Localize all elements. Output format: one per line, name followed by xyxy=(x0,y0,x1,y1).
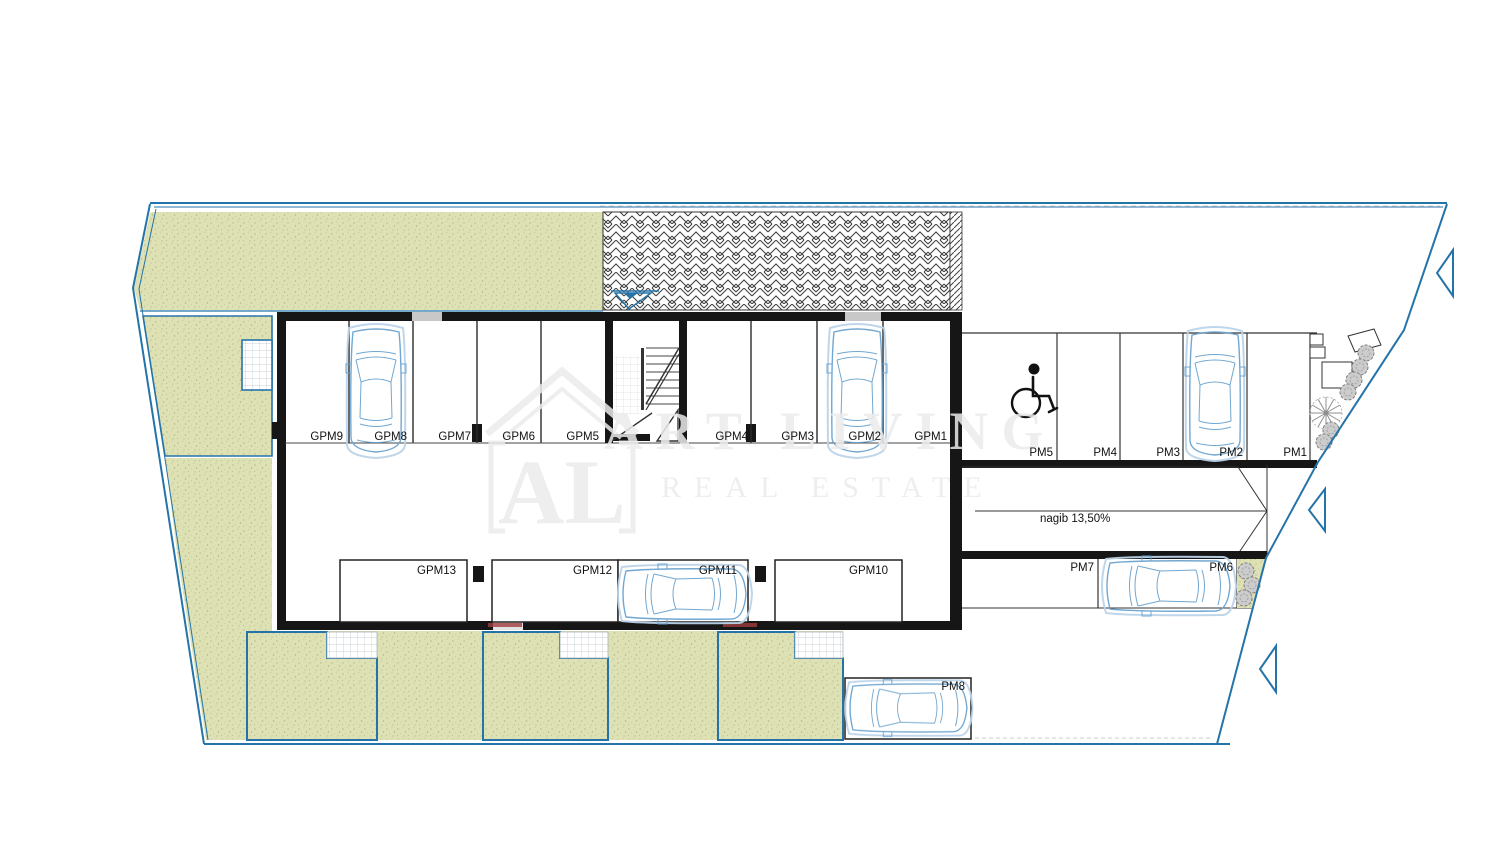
ramp xyxy=(962,465,1267,556)
hatched-wall-strip xyxy=(950,212,962,310)
stall-label-pm7: PM7 xyxy=(1070,562,1094,574)
stall-label-gpm5: GPM5 xyxy=(566,431,599,443)
herringbone-paving xyxy=(603,212,950,310)
car-icon xyxy=(1185,327,1245,461)
stall-label-pm5: PM5 xyxy=(1029,447,1053,459)
lightwell-grate xyxy=(560,632,608,658)
stall-label-pm6: PM6 xyxy=(1209,562,1233,574)
tree-icon xyxy=(1236,590,1252,606)
stall-label-pm4: PM4 xyxy=(1093,447,1117,459)
lawn-top-band xyxy=(134,212,603,310)
triangle-marker-icon xyxy=(1437,250,1453,296)
watermark: AL ART LIVING REAL ESTATE xyxy=(487,371,1056,543)
wall-opening xyxy=(412,312,442,321)
stall-label-pm1: PM1 xyxy=(1283,447,1307,459)
tree-icon xyxy=(1340,384,1356,400)
ramp-slope-label: nagib 13,50% xyxy=(1040,513,1110,525)
stall-label-gpm12: GPM12 xyxy=(573,565,612,577)
stall-label-gpm6: GPM6 xyxy=(502,431,535,443)
tree-icon xyxy=(1316,434,1332,450)
stall-label-pm3: PM3 xyxy=(1156,447,1180,459)
lightwell-grate xyxy=(795,632,843,658)
watermark-subtitle: REAL ESTATE xyxy=(661,471,995,504)
stall-label-gpm3: GPM3 xyxy=(781,431,814,443)
stall-label-gpm4: GPM4 xyxy=(715,431,748,443)
door-marker xyxy=(488,623,522,627)
pilaster xyxy=(272,422,284,439)
stall-label-gpm2: GPM2 xyxy=(848,431,881,443)
pilaster xyxy=(755,566,766,582)
triangle-marker-icon xyxy=(1260,646,1276,692)
stall-label-gpm11: GPM11 xyxy=(699,565,737,577)
watermark-title: ART LIVING xyxy=(604,401,1057,461)
parking-street-row xyxy=(845,678,1212,739)
boundary-markers xyxy=(1260,250,1453,692)
wall-opening xyxy=(845,312,881,321)
stall-label-gpm10: GPM10 xyxy=(849,565,888,577)
stall-label-gpm13: GPM13 xyxy=(417,565,456,577)
stall-label-gpm7: GPM7 xyxy=(438,431,471,443)
stall-label-pm8: PM8 xyxy=(941,681,965,693)
lightwell-grate xyxy=(242,340,272,390)
lightwell-grate xyxy=(327,632,377,658)
site-plan: AL ART LIVING REAL ESTATE GPM9 GPM8 GPM7… xyxy=(0,0,1500,860)
stall-label-gpm1: GPM1 xyxy=(914,431,947,443)
triangle-marker-icon xyxy=(1309,489,1325,531)
wall-west xyxy=(277,312,286,630)
pilaster xyxy=(473,566,484,582)
stall-label-gpm9: GPM9 xyxy=(310,431,343,443)
east-trees xyxy=(1310,345,1374,450)
stall-label-pm2: PM2 xyxy=(1219,447,1243,459)
stall-label-gpm8: GPM8 xyxy=(374,431,407,443)
